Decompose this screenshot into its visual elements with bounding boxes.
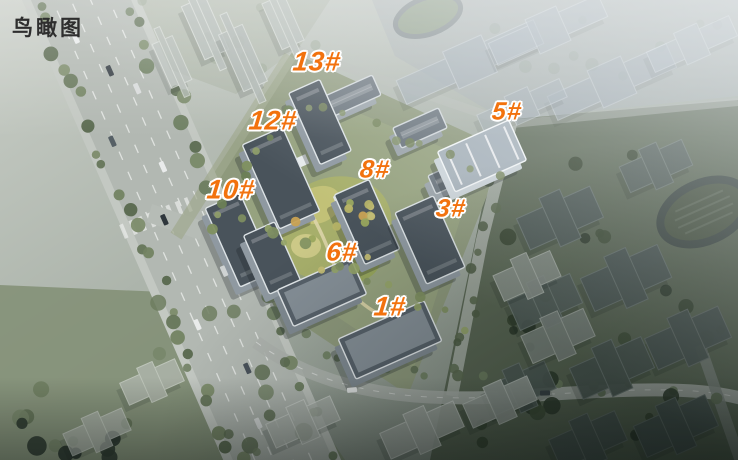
building-label-6: 6# (325, 237, 359, 268)
aerial-scene (0, 0, 738, 460)
view-title: 鸟瞰图 (12, 12, 84, 42)
building-label-10: 10# (205, 175, 256, 206)
aerial-view-image: 鸟瞰图 13# 12# 5# 10# 8# 3# 6# 1# (0, 0, 738, 460)
building-label-5: 5# (491, 98, 524, 127)
building-label-1: 1# (372, 292, 407, 323)
vignette (0, 0, 738, 460)
building-label-12: 12# (247, 106, 298, 137)
building-label-13: 13# (291, 47, 342, 78)
building-label-8: 8# (359, 156, 392, 185)
building-label-3: 3# (435, 195, 468, 224)
